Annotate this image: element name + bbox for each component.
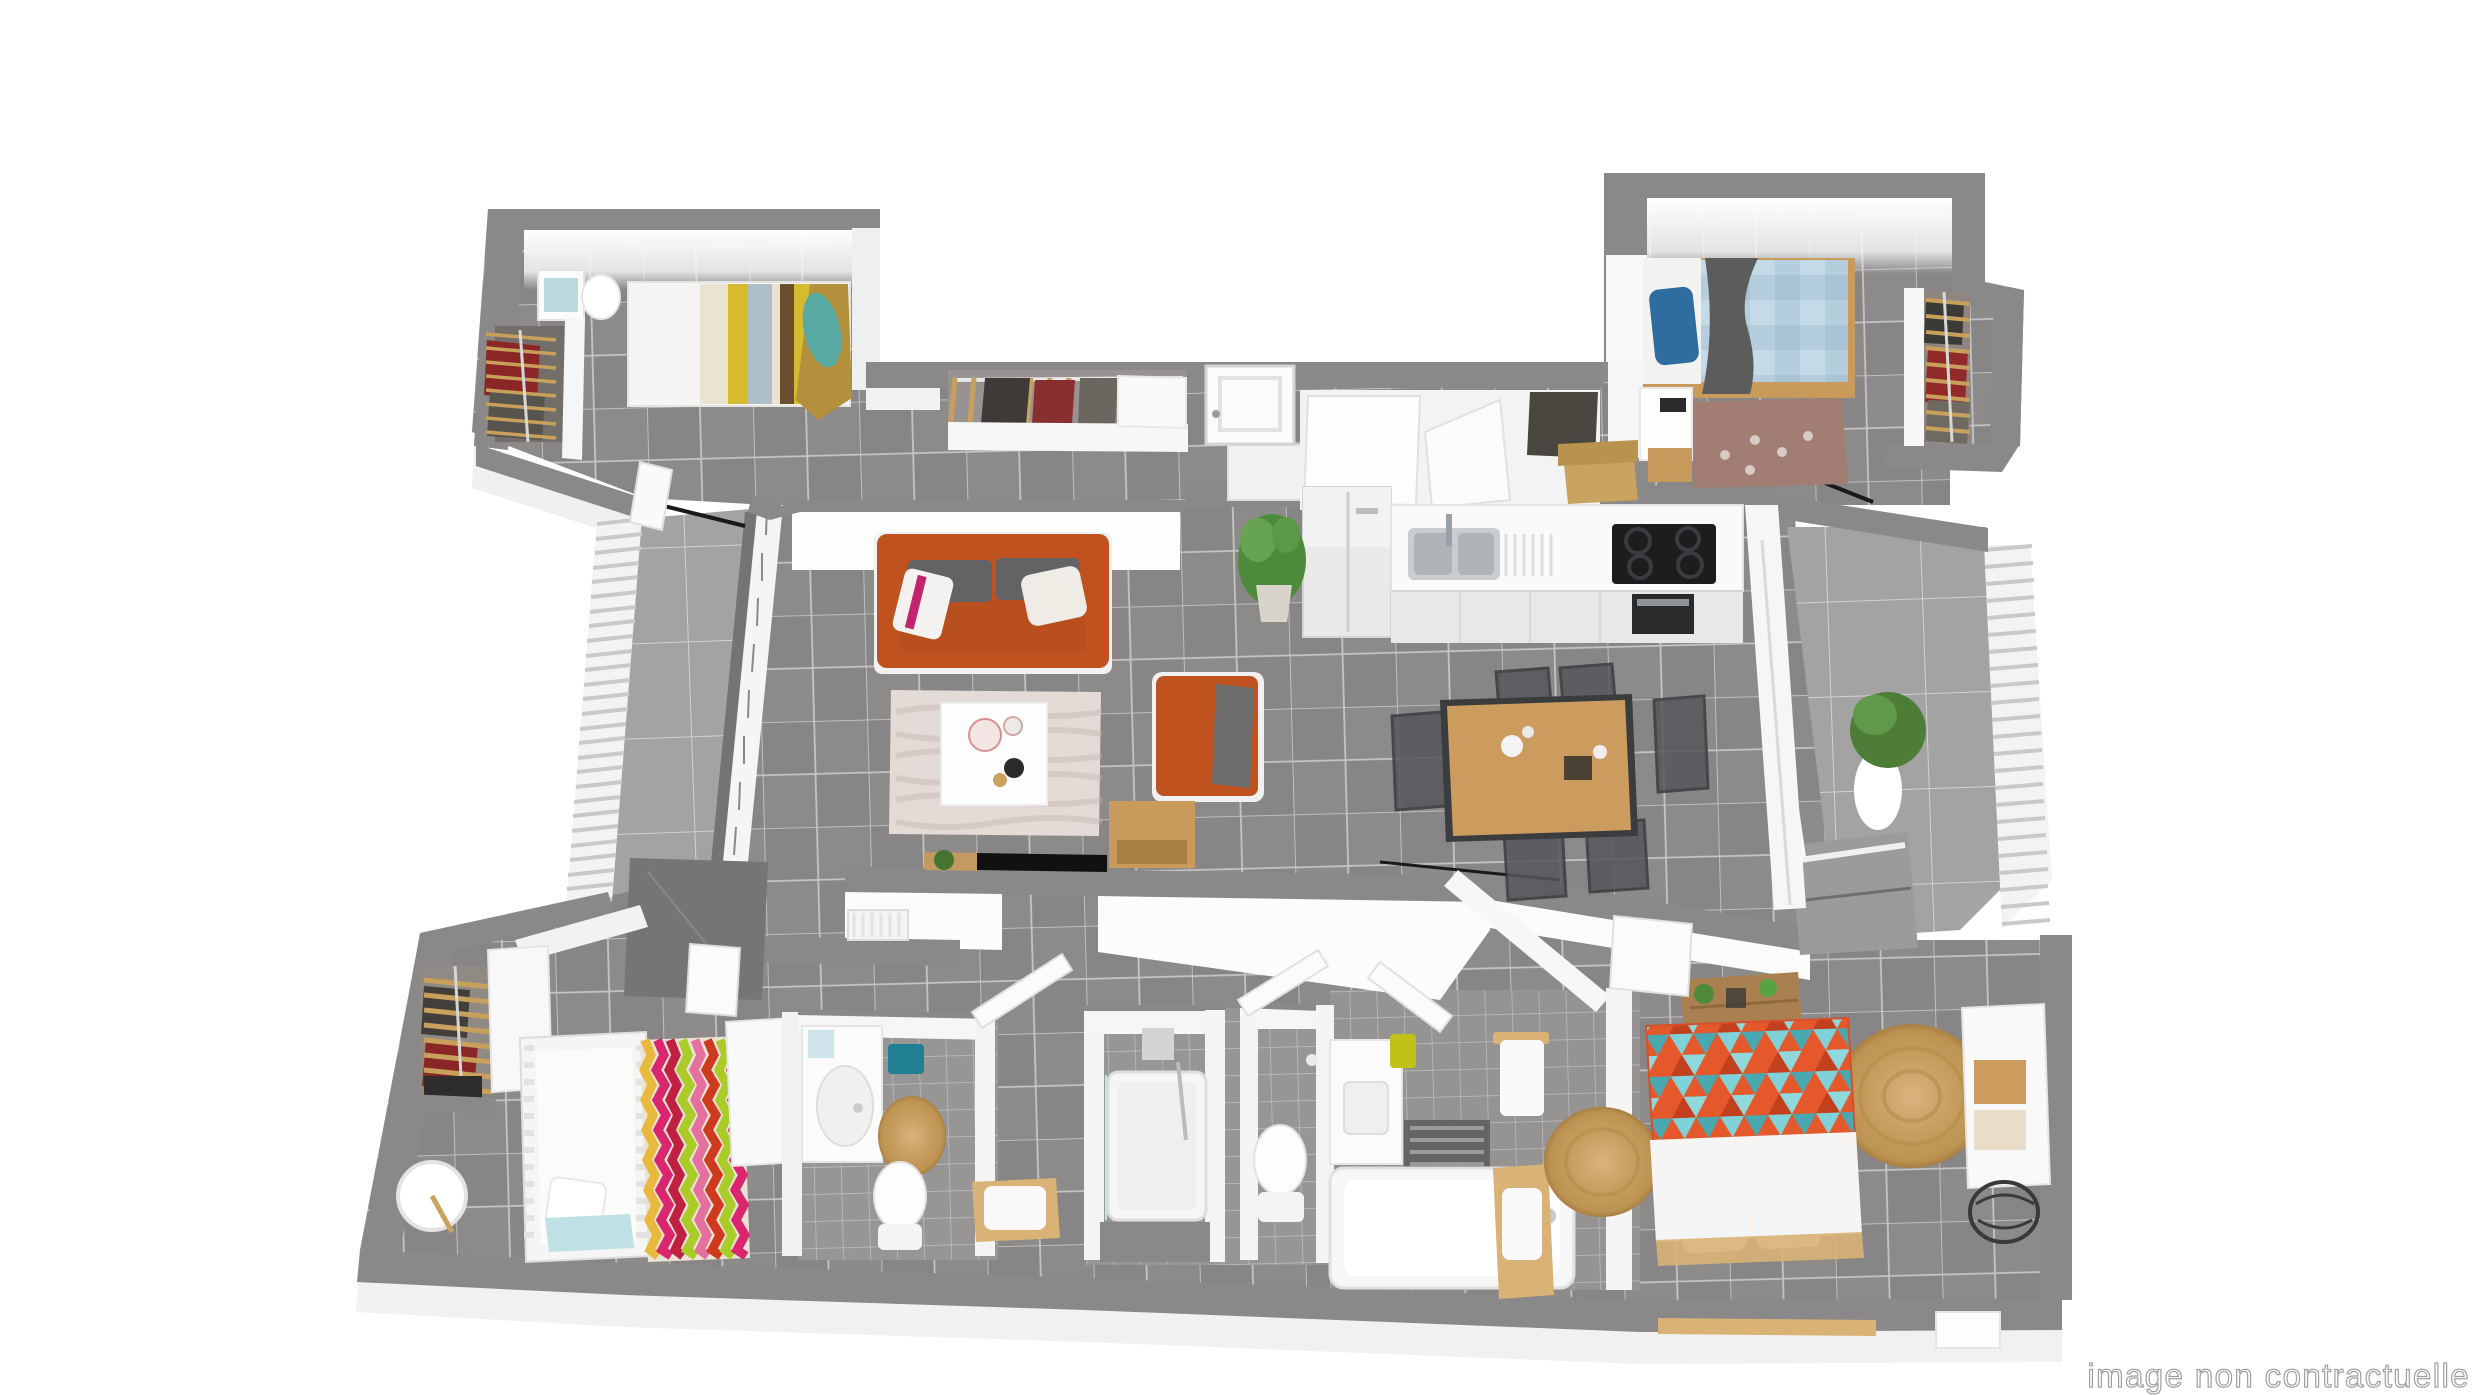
svg-text:image non contractuelle: image non contractuelle <box>2087 1357 2470 1394</box>
